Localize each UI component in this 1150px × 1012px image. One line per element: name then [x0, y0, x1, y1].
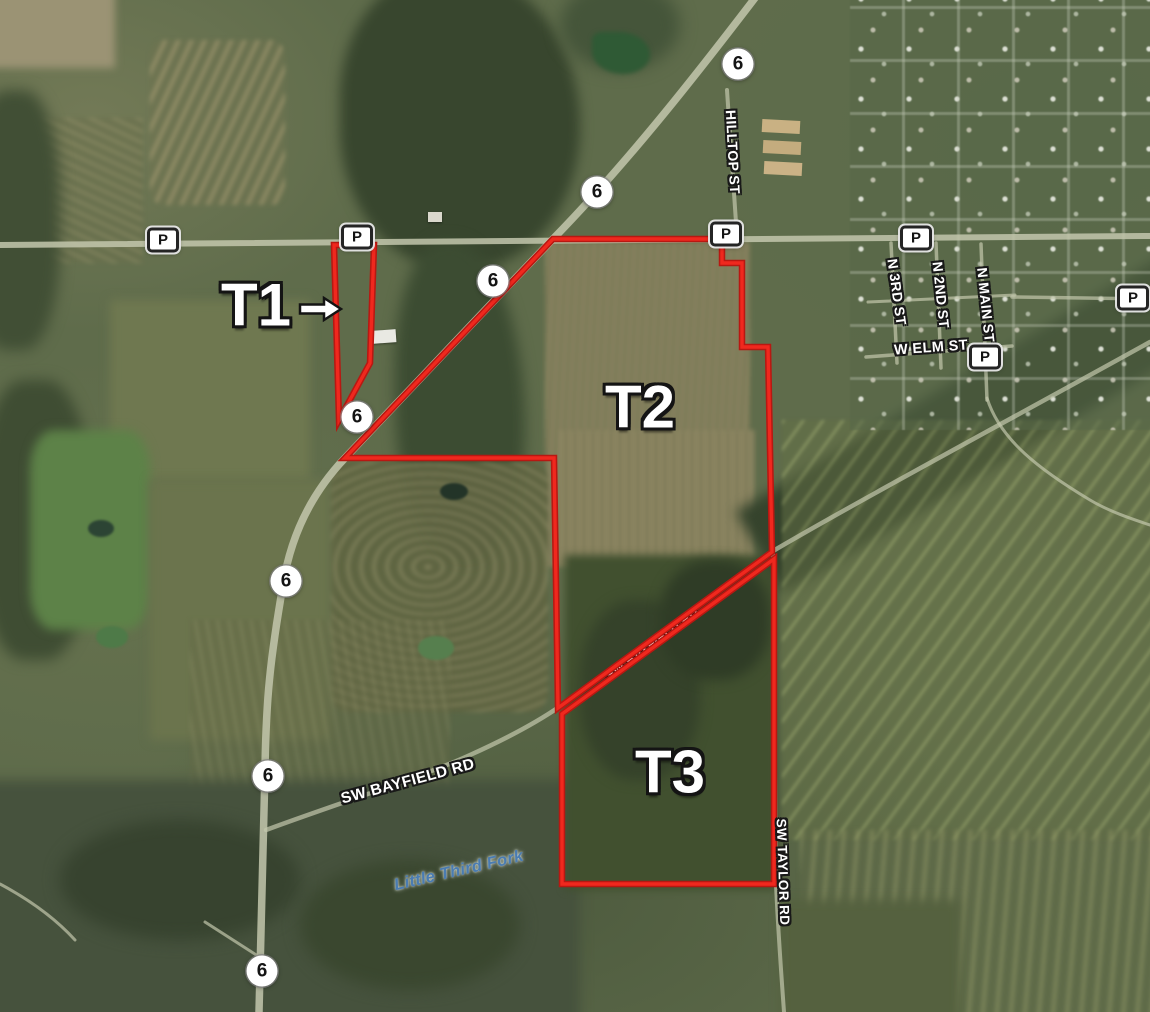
- route-shield-p: P: [1117, 286, 1149, 311]
- aerial-map[interactable]: SW BAYFIELD RD T1T2T3HILLTOP STN 3RD STN…: [0, 0, 1150, 1012]
- route-shield-6: 6: [342, 402, 373, 433]
- route-shield-p: P: [341, 225, 373, 250]
- route-shields-layer: 6666666PPPPPP: [0, 0, 1150, 1012]
- route-shield-6: 6: [582, 177, 613, 208]
- route-shield-6: 6: [271, 566, 302, 597]
- route-shield-p: P: [147, 228, 179, 253]
- route-shield-p: P: [710, 222, 742, 247]
- route-shield-6: 6: [723, 49, 754, 80]
- route-shield-6: 6: [247, 956, 278, 987]
- route-shield-6: 6: [478, 266, 509, 297]
- route-shield-6: 6: [253, 761, 284, 792]
- route-shield-p: P: [969, 345, 1001, 370]
- route-shield-p: P: [900, 226, 932, 251]
